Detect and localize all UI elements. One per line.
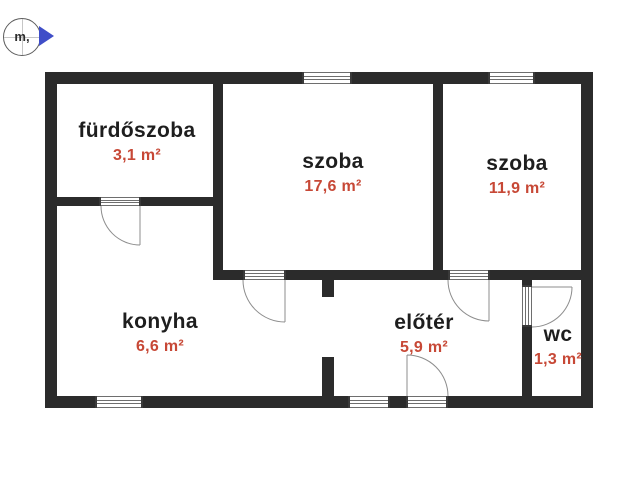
- plan-logo: m,: [3, 18, 55, 56]
- door-wc: [522, 285, 532, 327]
- window-bottom-hall: [348, 396, 390, 408]
- room-label-szoba-2: szoba 11,9 m²: [486, 152, 548, 198]
- door-bathroom: [99, 197, 141, 206]
- wall-bathroom-room-divider: [213, 84, 223, 280]
- door-room1-kitchen: [243, 270, 286, 280]
- room-name: szoba: [302, 150, 364, 174]
- wall-outer-left: [45, 72, 57, 408]
- room-name: előtér: [394, 311, 454, 335]
- right-arrow-icon: [39, 26, 54, 46]
- room-label-eloter: előtér 5,9 m²: [394, 311, 454, 357]
- room-label-wc: wc 1,3 m²: [534, 323, 582, 369]
- room-label-furdoszoba: fürdőszoba 3,1 m²: [78, 119, 195, 165]
- room-label-konyha: konyha 6,6 m²: [122, 310, 198, 356]
- wall-kitchen-hall-stub-top: [322, 280, 334, 297]
- room-area: 6,6 m²: [122, 338, 198, 356]
- window-bottom-kitchen: [95, 396, 143, 408]
- room-name: konyha: [122, 310, 198, 334]
- room-name: szoba: [486, 152, 548, 176]
- logo-text: m,: [4, 29, 40, 44]
- wall-kitchen-hall-stub-bottom: [322, 357, 334, 396]
- door-entrance: [406, 396, 448, 408]
- compass-circle-icon: m,: [3, 18, 41, 56]
- room-name: wc: [534, 323, 582, 347]
- window-top-room2: [488, 72, 535, 84]
- wall-outer-right: [581, 72, 593, 408]
- room-area: 1,3 m²: [534, 351, 582, 369]
- window-top-room1: [302, 72, 352, 84]
- room-name: fürdőszoba: [78, 119, 195, 143]
- room-area: 5,9 m²: [394, 339, 454, 357]
- door-room2-hall: [448, 270, 490, 280]
- room-area: 17,6 m²: [302, 178, 364, 196]
- wall-room-room-divider: [433, 84, 443, 270]
- room-label-szoba-1: szoba 17,6 m²: [302, 150, 364, 196]
- room-area: 11,9 m²: [486, 180, 548, 198]
- floor-plan: m, fürdőszoba 3,1 m² szoba 17,6 m² sz: [0, 0, 640, 480]
- room-area: 3,1 m²: [78, 147, 195, 165]
